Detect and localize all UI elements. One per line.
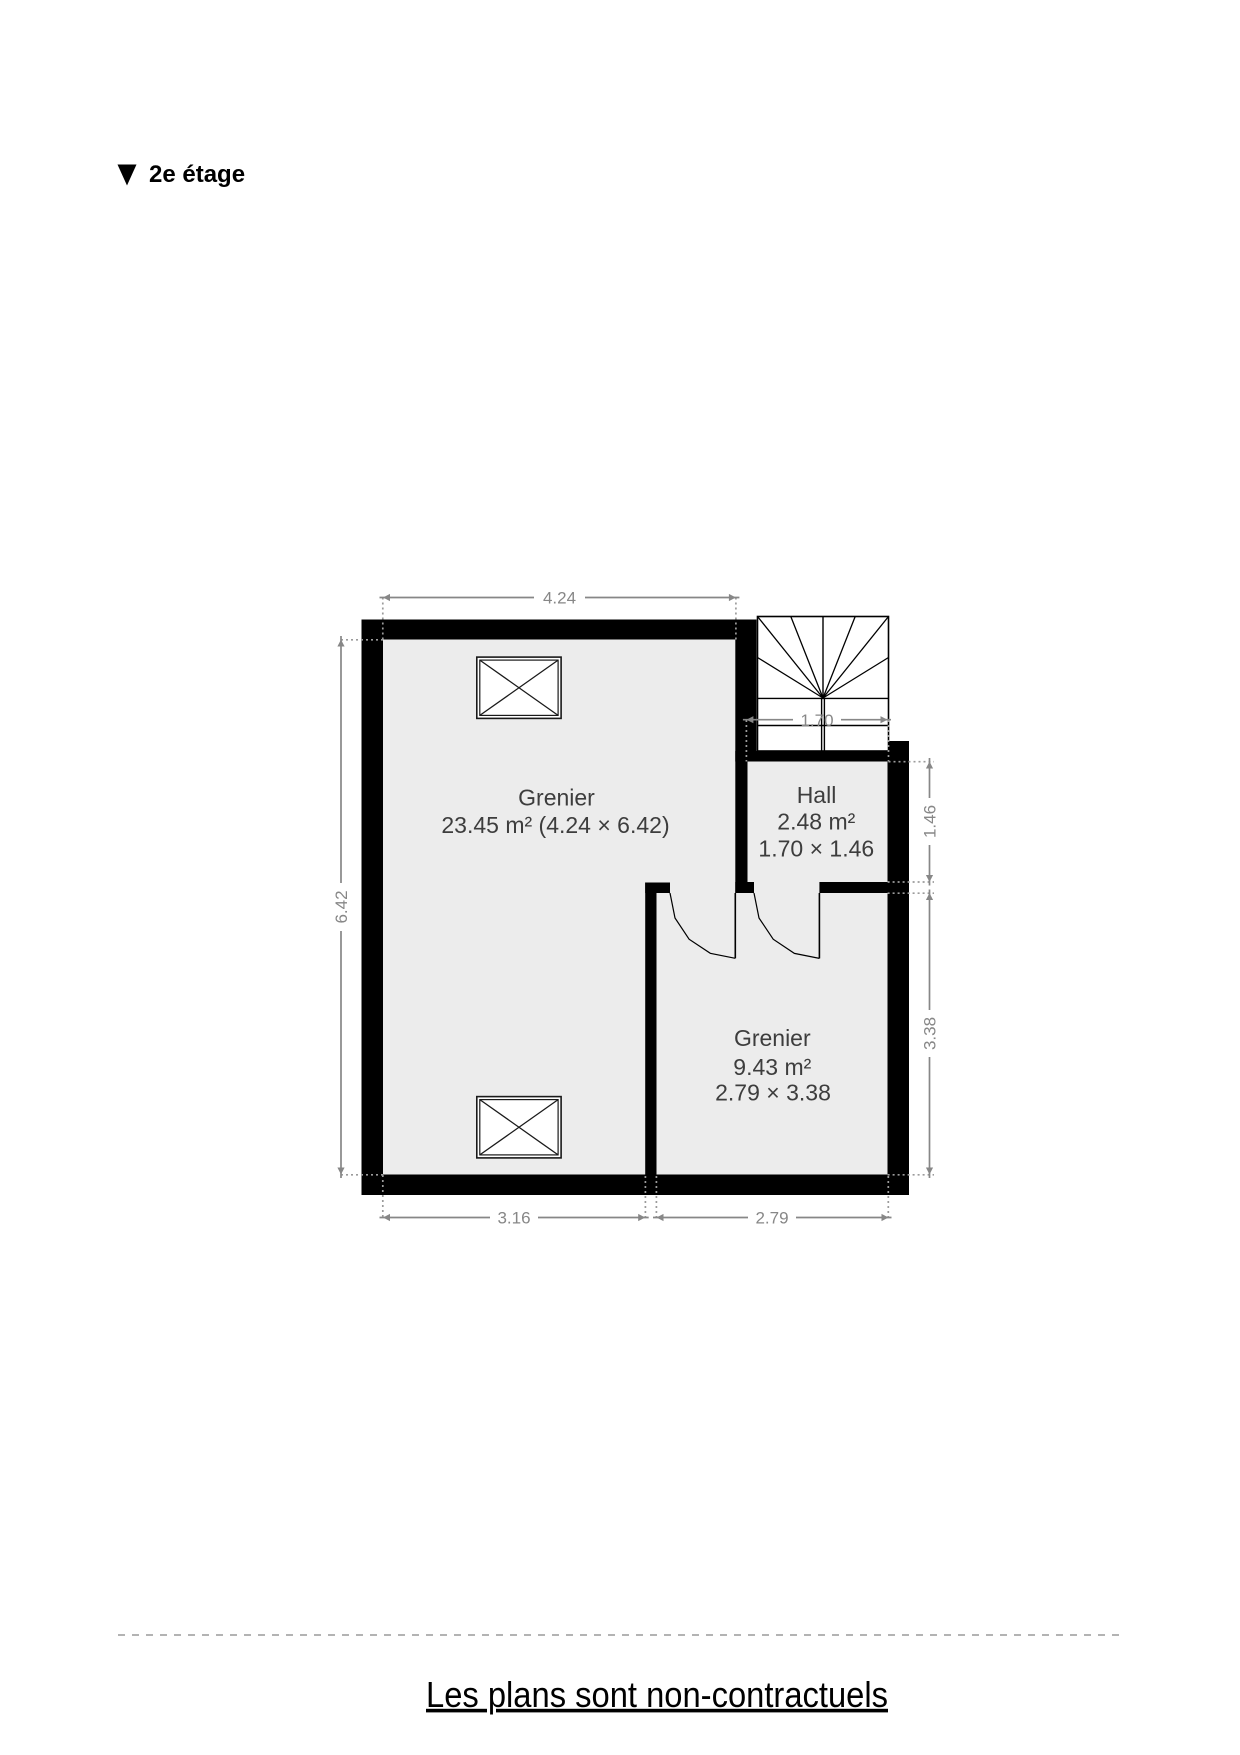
svg-text:Grenier: Grenier [518,785,595,811]
svg-text:9.43 m²: 9.43 m² [733,1054,811,1080]
svg-text:3.16: 3.16 [497,1209,530,1228]
svg-text:4.24: 4.24 [543,589,576,608]
svg-text:1.70 × 1.46: 1.70 × 1.46 [758,836,874,862]
svg-text:Les plans sont non-contractuel: Les plans sont non-contractuels [426,1674,888,1715]
svg-text:2.79: 2.79 [755,1209,788,1228]
svg-text:Grenier: Grenier [734,1025,811,1051]
svg-text:2e étage: 2e étage [149,161,245,188]
svg-text:1.46: 1.46 [921,805,940,838]
svg-text:3.38: 3.38 [921,1017,940,1050]
svg-text:6.42: 6.42 [332,890,351,923]
svg-text:2.79 × 3.38: 2.79 × 3.38 [715,1079,831,1105]
svg-text:Hall: Hall [797,782,837,808]
svg-text:2.48 m²: 2.48 m² [777,809,855,835]
svg-text:23.45 m² (4.24 × 6.42): 23.45 m² (4.24 × 6.42) [441,812,669,838]
svg-text:1.70: 1.70 [800,711,833,730]
